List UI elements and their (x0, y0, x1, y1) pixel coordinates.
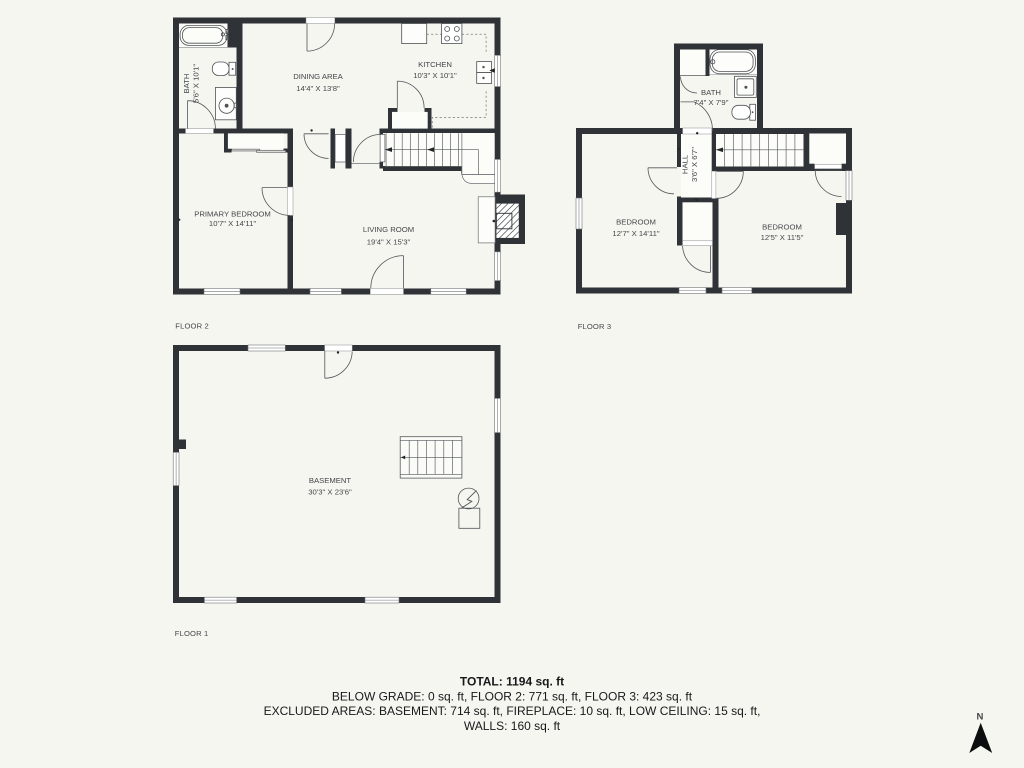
svg-text:BEDROOM: BEDROOM (762, 223, 802, 232)
svg-text:19'4" X 15'3": 19'4" X 15'3" (367, 237, 411, 246)
svg-text:BATH: BATH (182, 74, 191, 94)
svg-text:PRIMARY BEDROOM: PRIMARY BEDROOM (194, 210, 271, 219)
svg-text:BELOW GRADE: 0 sq. ft, FLOOR 2: BELOW GRADE: 0 sq. ft, FLOOR 2: 771 sq. … (332, 690, 693, 704)
svg-text:N: N (977, 712, 984, 723)
svg-text:KITCHEN: KITCHEN (418, 60, 452, 69)
svg-text:BATH: BATH (701, 88, 721, 97)
svg-text:BASEMENT: BASEMENT (309, 476, 352, 485)
svg-text:FLOOR 3: FLOOR 3 (578, 322, 612, 331)
svg-text:LIVING ROOM: LIVING ROOM (363, 225, 414, 234)
svg-text:12'5" X 11'5": 12'5" X 11'5" (761, 233, 804, 242)
svg-text:12'7" X 14'11": 12'7" X 14'11" (612, 229, 659, 238)
svg-text:7'4" X 7'9": 7'4" X 7'9" (694, 98, 729, 107)
svg-text:3'6" X 6'7": 3'6" X 6'7" (690, 147, 699, 182)
svg-text:DINING AREA: DINING AREA (293, 72, 343, 81)
svg-text:TOTAL: 1194 sq. ft: TOTAL: 1194 sq. ft (460, 675, 564, 689)
svg-text:30'3" X 23'6": 30'3" X 23'6" (308, 488, 352, 497)
svg-text:WALLS: 160 sq. ft: WALLS: 160 sq. ft (464, 719, 561, 733)
svg-text:FLOOR 1: FLOOR 1 (175, 629, 209, 638)
svg-text:BEDROOM: BEDROOM (616, 218, 656, 227)
svg-text:FLOOR 2: FLOOR 2 (175, 322, 209, 331)
svg-text:5'6" X 10'1": 5'6" X 10'1" (192, 64, 201, 103)
svg-text:10'3" X 10'1": 10'3" X 10'1" (413, 71, 457, 80)
svg-text:14'4" X 13'8": 14'4" X 13'8" (296, 84, 340, 93)
svg-text:10'7" X 14'11": 10'7" X 14'11" (209, 219, 256, 228)
svg-text:EXCLUDED AREAS: BASEMENT: 714: EXCLUDED AREAS: BASEMENT: 714 sq. ft, FI… (264, 704, 761, 718)
svg-text:HALL: HALL (680, 154, 689, 174)
